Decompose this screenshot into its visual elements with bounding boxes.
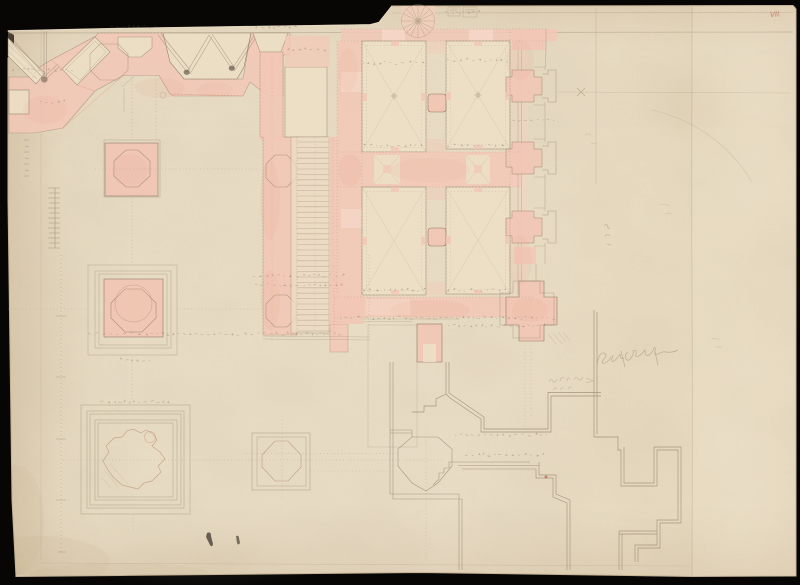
svg-text:VII.: VII. xyxy=(770,9,782,19)
